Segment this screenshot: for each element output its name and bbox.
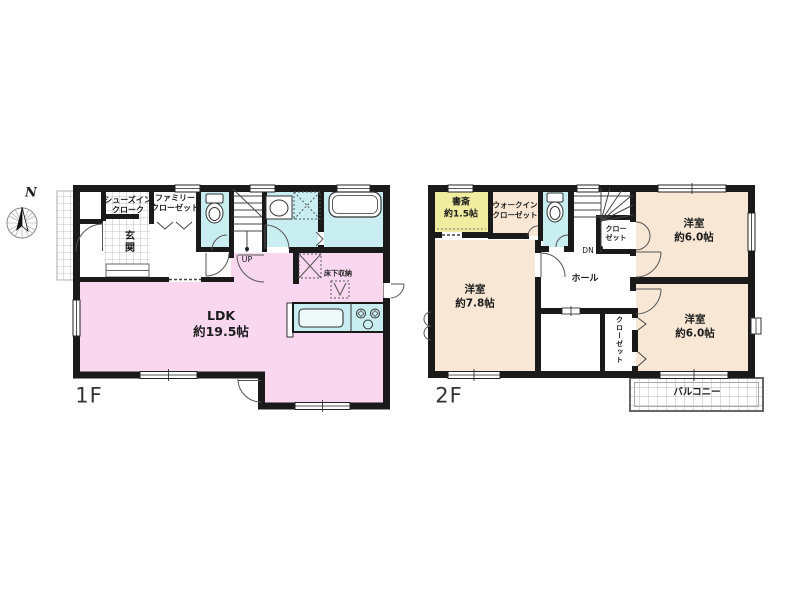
room-label-family-closet: ファミリー クローゼット <box>151 194 199 215</box>
room-label-underfloor-storage: 床下収納 <box>324 269 352 278</box>
compass-icon <box>7 207 37 238</box>
room-label-ldk: LDK 約19.5帖 <box>193 308 249 341</box>
room-label-bedroom-left: 洋室 約7.8帖 <box>455 283 495 310</box>
floor2-label: 2F <box>435 382 462 409</box>
stairs-up-label: UP <box>242 255 253 265</box>
room-label-study: 書斎 約1.5帖 <box>444 197 478 220</box>
bathtub-icon <box>329 192 381 217</box>
room-label-closet-upper: クロー ゼット <box>606 225 627 243</box>
room-label-closet-lower: クローゼット <box>614 316 623 364</box>
toilet-icon-2f <box>547 193 563 222</box>
kitchen-counter <box>287 303 384 337</box>
floor-plan-page: N シューズイン クローク ファミリー クローゼット 玄関 UP 床下収納 LD… <box>0 0 800 600</box>
stairs-dn-label: DN <box>582 246 593 256</box>
floor1-label: 1F <box>75 382 102 409</box>
room-label-entrance: 玄関 <box>122 230 135 254</box>
floor1-plan <box>57 185 404 412</box>
room-label-walk-in-closet: ウォークイン クローゼット <box>493 200 538 220</box>
washbasin-icon <box>266 196 292 219</box>
kitchen-sink-icon <box>299 309 343 327</box>
room-label-bedroom-upper-right: 洋室 約6.0帖 <box>674 217 714 244</box>
room-label-hall: ホール <box>571 274 598 286</box>
toilet-icon-1f <box>206 194 223 223</box>
compass-north-label: N <box>25 186 37 203</box>
kitchen-backdoor-arc <box>391 284 404 298</box>
garden-door-arc <box>238 379 261 402</box>
room-label-bedroom-lower-right: 洋室 約6.0帖 <box>675 313 715 340</box>
floor-plan-drawing <box>0 0 800 600</box>
room-label-shoes-in-closet: シューズイン クローク <box>104 196 152 217</box>
room-label-balcony: バルコニー <box>673 387 720 399</box>
